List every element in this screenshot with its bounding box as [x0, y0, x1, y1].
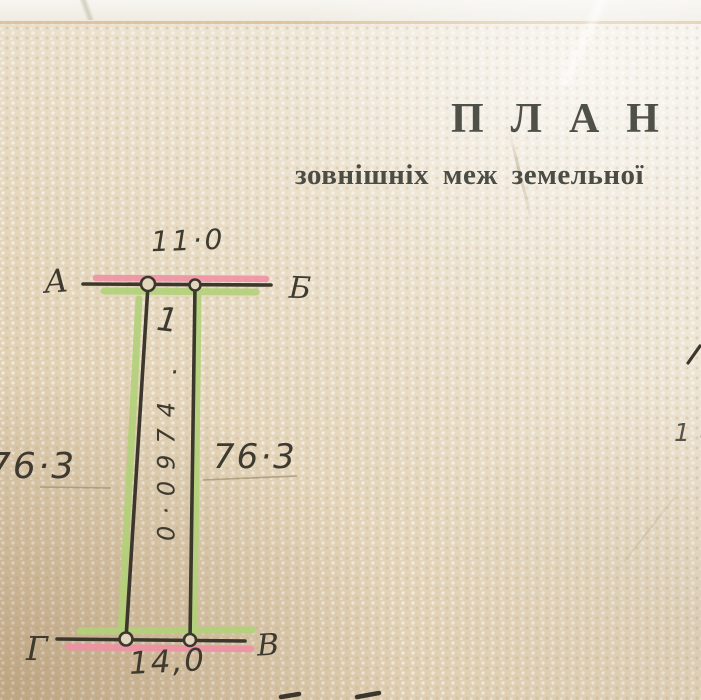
boundary-line-top	[83, 284, 271, 285]
survey-point-top-left	[141, 277, 155, 291]
boundary-line-bottom	[57, 639, 245, 641]
cut-text-mark-2	[357, 693, 379, 697]
dimension-bottom: 14,0	[128, 642, 207, 682]
ink-tick-right-edge	[688, 346, 700, 363]
corner-label-v: В	[256, 627, 280, 663]
photographed-land-plan-page: ПЛАН зовнішніх меж земельної А Б В Г 11·…	[0, 0, 701, 700]
corner-label-a: А	[43, 261, 70, 301]
corner-label-g: Г	[26, 629, 48, 668]
green-highlight-top	[104, 291, 256, 292]
page-subtitle: зовнішніх меж земельної	[295, 159, 644, 192]
plot-area-value: 0·0974	[153, 379, 181, 554]
pencil-underline-left-dimension	[40, 487, 111, 488]
dimension-left: 76·3	[0, 446, 76, 487]
survey-point-bottom-left	[120, 633, 133, 646]
cut-text-mark-1	[281, 694, 299, 697]
green-highlight-bottom	[80, 630, 252, 631]
dimension-right: 76·3	[213, 437, 297, 477]
pink-highlight-top	[96, 278, 266, 279]
page-title: ПЛАН	[451, 95, 686, 143]
corner-label-b: Б	[288, 271, 311, 307]
stray-ink-marks	[281, 346, 700, 697]
survey-point-top-right	[190, 280, 201, 291]
dimension-top: 11·0	[150, 223, 225, 259]
margin-note: 18	[674, 418, 701, 447]
